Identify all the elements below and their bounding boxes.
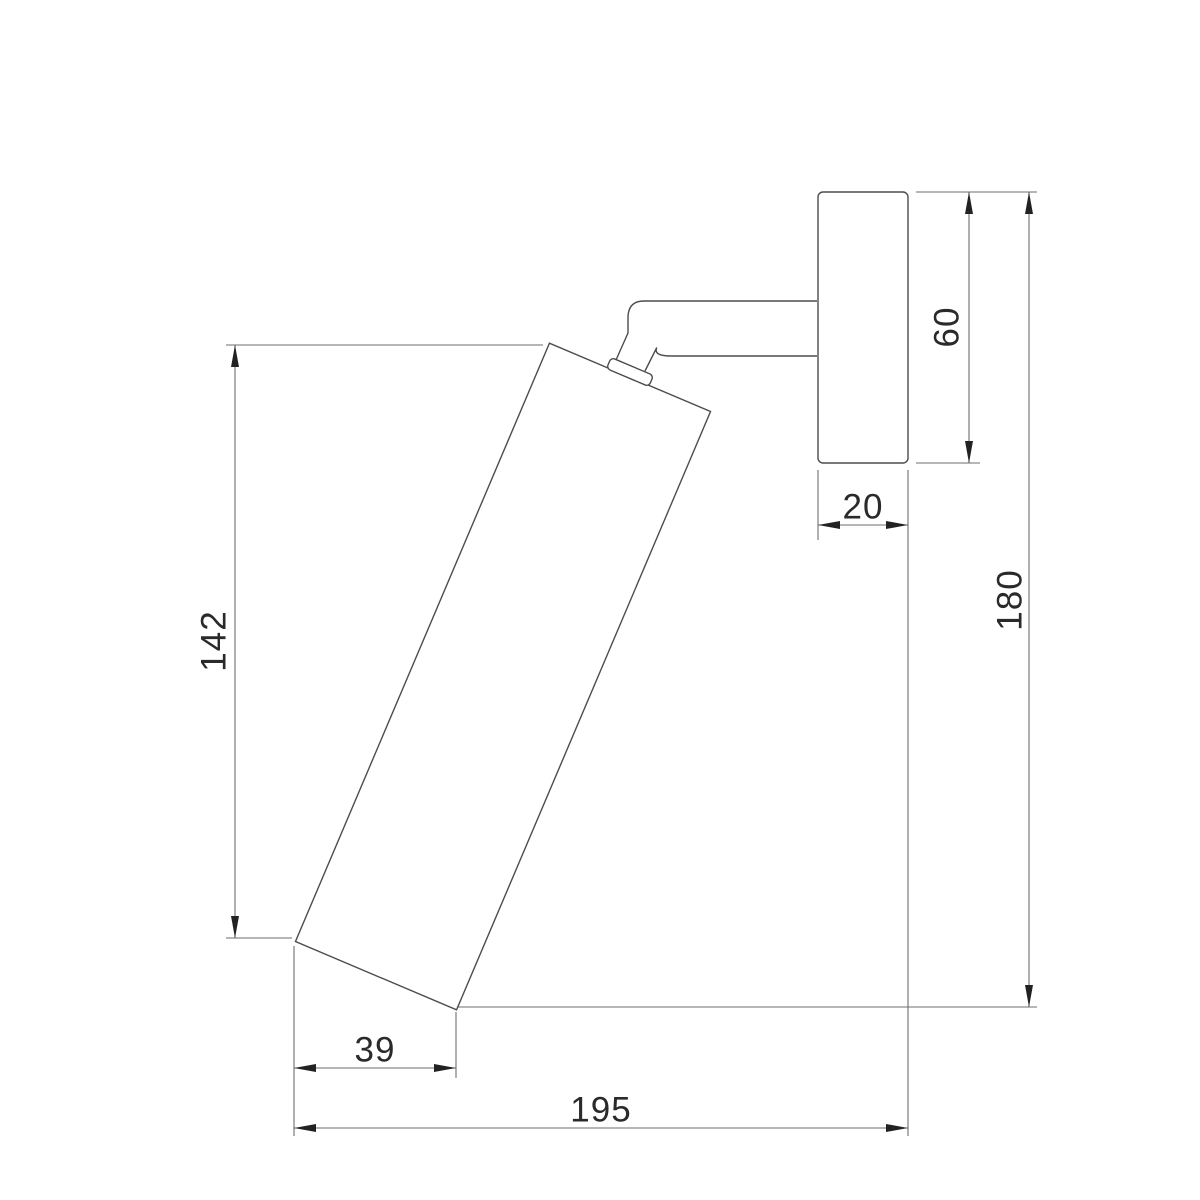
- mounting-arm: [616, 301, 817, 371]
- dimension-arrow-down-icon: [1025, 985, 1033, 1007]
- dimension-arrow-right-icon: [886, 521, 908, 529]
- dimension-arrow-down-icon: [231, 916, 239, 938]
- dimension-arrow-up-icon: [965, 192, 973, 214]
- lamp-cylinder-outline: [295, 343, 710, 1010]
- dimension-arrow-right-icon: [886, 1124, 908, 1132]
- dimension-arrow-left-icon: [294, 1064, 316, 1072]
- dimension-arrow-left-icon: [294, 1124, 316, 1132]
- dimension-arrow-up-icon: [1025, 192, 1033, 214]
- dimension-label-bracket-depth: 20: [843, 488, 884, 527]
- dimension-arrow-right-icon: [434, 1064, 456, 1072]
- dimension-arrow-down-icon: [965, 441, 973, 463]
- lamp-cylinder: [295, 343, 710, 1010]
- dimension-label-overall-width: 195: [570, 1091, 631, 1130]
- dim-bracket-depth: 20: [818, 470, 908, 540]
- dimension-label-base-width: 39: [355, 1031, 396, 1070]
- dimension-label-bracket-height: 60: [928, 307, 967, 348]
- dim-bracket-height: 60: [916, 192, 1037, 463]
- lamp-dimension-drawing: 142 39 195 20: [0, 0, 1200, 1200]
- dimension-label-overall-height: 180: [991, 569, 1030, 630]
- dimension-arrow-up-icon: [231, 345, 239, 367]
- drawing-canvas: 142 39 195 20: [0, 0, 1200, 1200]
- wall-plate: [818, 192, 908, 463]
- dimension-arrow-left-icon: [818, 521, 840, 529]
- lamp-body: [295, 192, 908, 1010]
- dim-base-width: 39: [294, 1012, 456, 1078]
- dimension-label-lamp-height: 142: [195, 610, 234, 671]
